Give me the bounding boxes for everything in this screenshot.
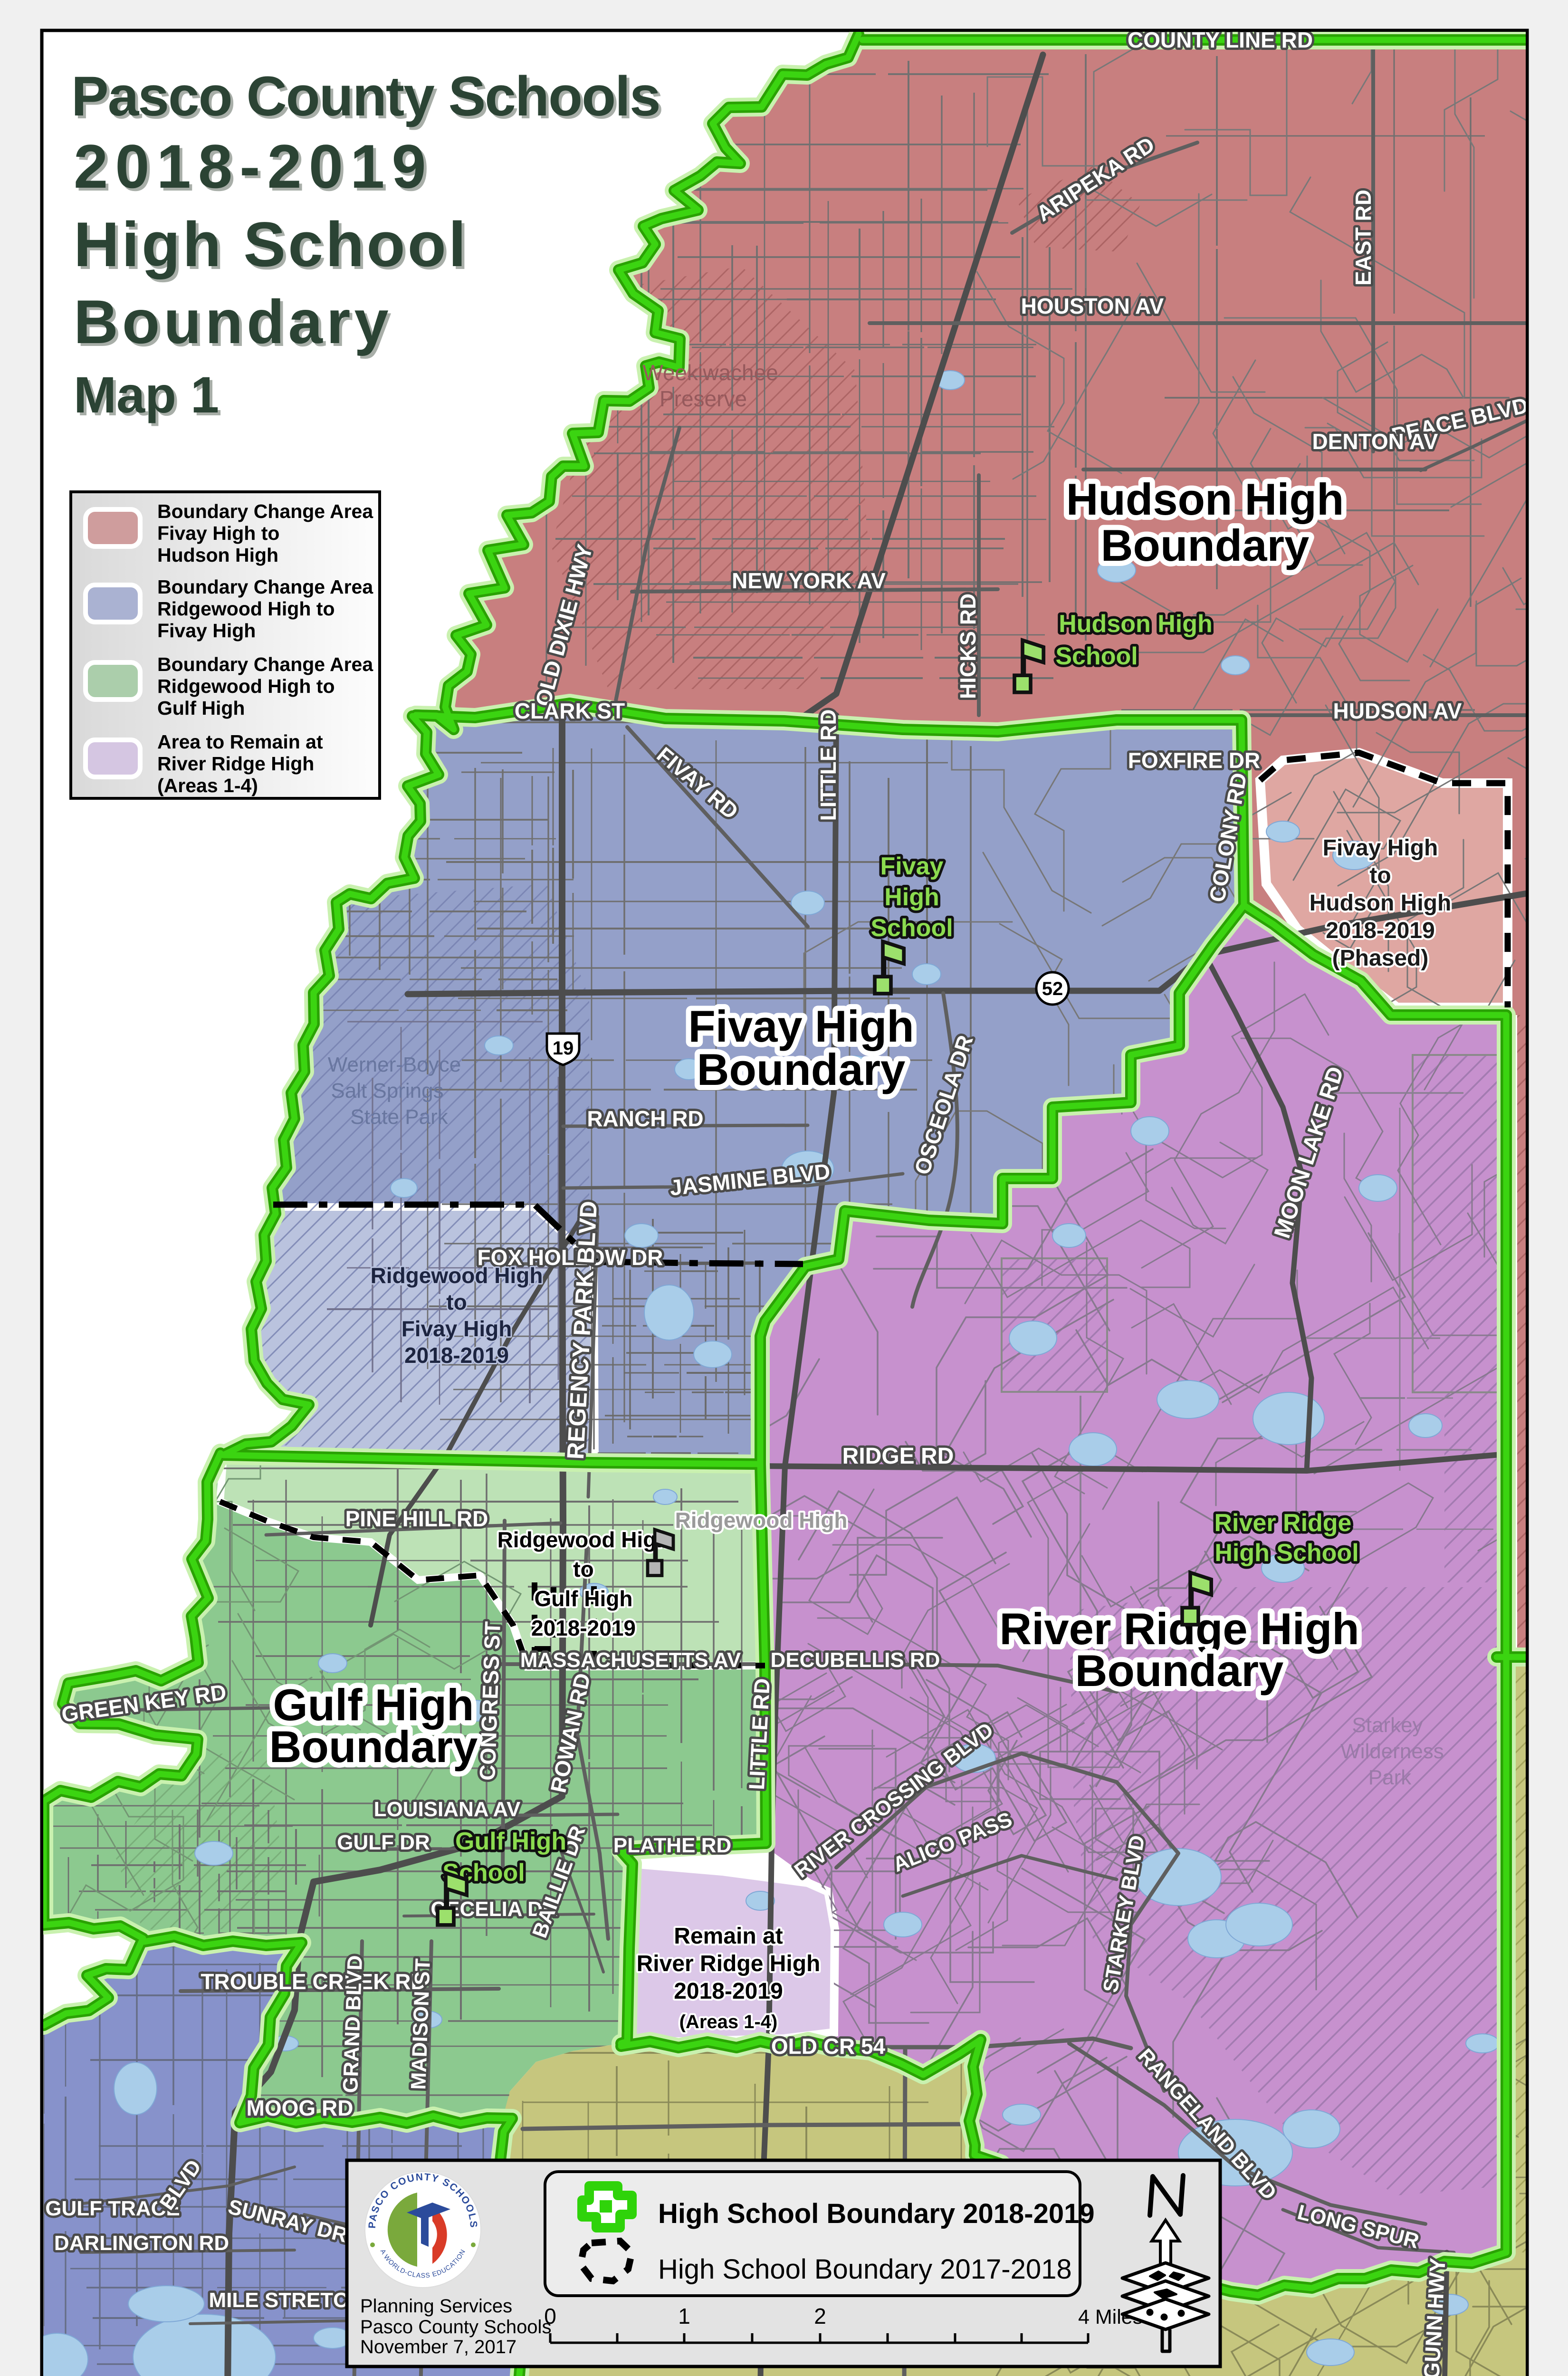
svg-text:Boundary: Boundary xyxy=(269,1722,478,1772)
svg-text:2018-2019: 2018-2019 xyxy=(674,1979,783,2004)
svg-text:School: School xyxy=(870,914,953,942)
svg-text:MOOG RD: MOOG RD xyxy=(247,2096,354,2120)
svg-text:(Phased): (Phased) xyxy=(1332,946,1429,971)
svg-text:Werner-Boyce: Werner-Boyce xyxy=(328,1053,461,1076)
svg-text:Fivay High: Fivay High xyxy=(402,1316,512,1341)
svg-text:River Ridge: River Ridge xyxy=(1214,1509,1352,1537)
svg-text:Remain at: Remain at xyxy=(674,1924,783,1949)
svg-text:Pasco County Schools: Pasco County Schools xyxy=(71,65,660,128)
svg-text:DARLINGTON RD: DARLINGTON RD xyxy=(54,2232,229,2255)
svg-text:Pasco County Schools: Pasco County Schools xyxy=(360,2317,551,2338)
svg-text:PLATHE RD: PLATHE RD xyxy=(613,1834,732,1857)
svg-text:PINE HILL RD: PINE HILL RD xyxy=(345,1506,488,1531)
svg-text:High School: High School xyxy=(1214,1539,1358,1567)
svg-text:Boundary: Boundary xyxy=(1075,1646,1284,1696)
svg-text:High: High xyxy=(884,883,939,911)
svg-text:(Areas 1-4): (Areas 1-4) xyxy=(679,2012,778,2032)
svg-text:Map 1: Map 1 xyxy=(74,366,219,423)
svg-text:November 7, 2017: November 7, 2017 xyxy=(360,2337,516,2357)
svg-text:2018-2019: 2018-2019 xyxy=(1326,918,1435,943)
svg-text:Hudson High: Hudson High xyxy=(1310,891,1452,916)
svg-text:GULF DR: GULF DR xyxy=(337,1831,430,1854)
svg-text:FOXFIRE DR: FOXFIRE DR xyxy=(1128,748,1261,773)
svg-text:Boundary: Boundary xyxy=(1101,520,1310,570)
svg-text:High School Boundary 2017-2018: High School Boundary 2017-2018 xyxy=(658,2254,1072,2285)
svg-text:Area to Remain at: Area to Remain at xyxy=(157,731,323,753)
svg-text:River Ridge High: River Ridge High xyxy=(637,1951,821,1976)
svg-text:0: 0 xyxy=(544,2304,556,2328)
svg-text:LOUISIANA AV: LOUISIANA AV xyxy=(374,1798,521,1821)
svg-text:High School Boundary 2018-2019: High School Boundary 2018-2019 xyxy=(658,2198,1095,2229)
svg-text:1: 1 xyxy=(678,2304,690,2328)
svg-text:Fivay High to: Fivay High to xyxy=(157,522,279,544)
svg-text:CLARK ST: CLARK ST xyxy=(515,699,625,723)
svg-text:Boundary Change Area: Boundary Change Area xyxy=(157,576,373,598)
svg-text:2018-2019: 2018-2019 xyxy=(404,1343,509,1368)
svg-text:Ridgewood High: Ridgewood High xyxy=(371,1263,543,1288)
svg-text:(Areas 1-4): (Areas 1-4) xyxy=(157,775,258,796)
svg-text:Gulf High: Gulf High xyxy=(535,1586,633,1611)
svg-text:Boundary: Boundary xyxy=(697,1044,906,1094)
svg-text:Fivay High: Fivay High xyxy=(157,620,256,642)
svg-text:School: School xyxy=(1055,642,1138,670)
svg-text:Park: Park xyxy=(1368,1766,1412,1789)
svg-text:Gulf High: Gulf High xyxy=(455,1828,566,1855)
svg-text:LITTLE RD: LITTLE RD xyxy=(816,709,841,821)
svg-text:River Ridge High: River Ridge High xyxy=(157,753,314,775)
svg-text:Planning Services: Planning Services xyxy=(360,2296,512,2317)
svg-text:High School: High School xyxy=(74,210,468,280)
svg-text:HOUSTON AV: HOUSTON AV xyxy=(1021,294,1164,318)
svg-text:19: 19 xyxy=(553,1038,574,1059)
svg-text:Fivay: Fivay xyxy=(880,853,944,880)
svg-text:to: to xyxy=(573,1557,593,1581)
svg-text:to: to xyxy=(1369,863,1391,888)
svg-text:Hudson High: Hudson High xyxy=(1066,474,1344,524)
svg-text:RANCH RD: RANCH RD xyxy=(587,1106,703,1131)
svg-text:52: 52 xyxy=(1042,978,1063,999)
svg-text:TROUBLE CREEK RD: TROUBLE CREEK RD xyxy=(201,1969,426,1994)
svg-text:DENTON AV: DENTON AV xyxy=(1312,429,1438,454)
svg-text:Hudson High: Hudson High xyxy=(157,544,278,566)
svg-text:Fivay High: Fivay High xyxy=(688,1001,914,1051)
svg-text:Salt Springs: Salt Springs xyxy=(331,1079,443,1102)
svg-text:to: to xyxy=(446,1290,467,1314)
svg-text:DECUBELLIS RD: DECUBELLIS RD xyxy=(771,1648,940,1672)
svg-text:Wilderness: Wilderness xyxy=(1340,1740,1444,1763)
svg-text:2: 2 xyxy=(814,2304,826,2328)
svg-text:Ridgewood High to: Ridgewood High to xyxy=(157,675,335,697)
svg-text:MADISON ST: MADISON ST xyxy=(407,1958,435,2090)
svg-text:2018-2019: 2018-2019 xyxy=(531,1616,636,1640)
svg-text:Boundary Change Area: Boundary Change Area xyxy=(157,653,373,675)
svg-text:HICKS RD: HICKS RD xyxy=(956,594,980,699)
svg-text:Ridgewood High: Ridgewood High xyxy=(675,1508,848,1533)
svg-text:Weekiwachee: Weekiwachee xyxy=(642,360,778,385)
svg-text:EAST RD: EAST RD xyxy=(1351,190,1376,286)
svg-text:2018-2019: 2018-2019 xyxy=(74,132,433,201)
svg-text:RIDGE RD: RIDGE RD xyxy=(842,1444,954,1469)
svg-text:Boundary Change Area: Boundary Change Area xyxy=(157,500,373,522)
svg-text:State Park: State Park xyxy=(350,1105,448,1129)
svg-text:Fivay High: Fivay High xyxy=(1323,835,1438,861)
svg-text:Boundary: Boundary xyxy=(74,287,392,356)
svg-text:Hudson High: Hudson High xyxy=(1059,610,1213,638)
svg-text:GRAND BLVD: GRAND BLVD xyxy=(339,1955,367,2094)
svg-text:Ridgewood High to: Ridgewood High to xyxy=(157,598,335,620)
svg-text:HUDSON AV: HUDSON AV xyxy=(1333,699,1462,723)
svg-text:Starkey: Starkey xyxy=(1352,1714,1423,1737)
svg-text:OLD CR 54: OLD CR 54 xyxy=(771,2034,886,2059)
svg-text:Ridgewood High: Ridgewood High xyxy=(497,1527,670,1552)
svg-text:Gulf High: Gulf High xyxy=(157,697,245,719)
svg-text:MASSACHUSETTS AV: MASSACHUSETTS AV xyxy=(520,1648,741,1672)
svg-text:NEW YORK AV: NEW YORK AV xyxy=(732,568,886,593)
svg-text:Preserve: Preserve xyxy=(660,386,747,411)
